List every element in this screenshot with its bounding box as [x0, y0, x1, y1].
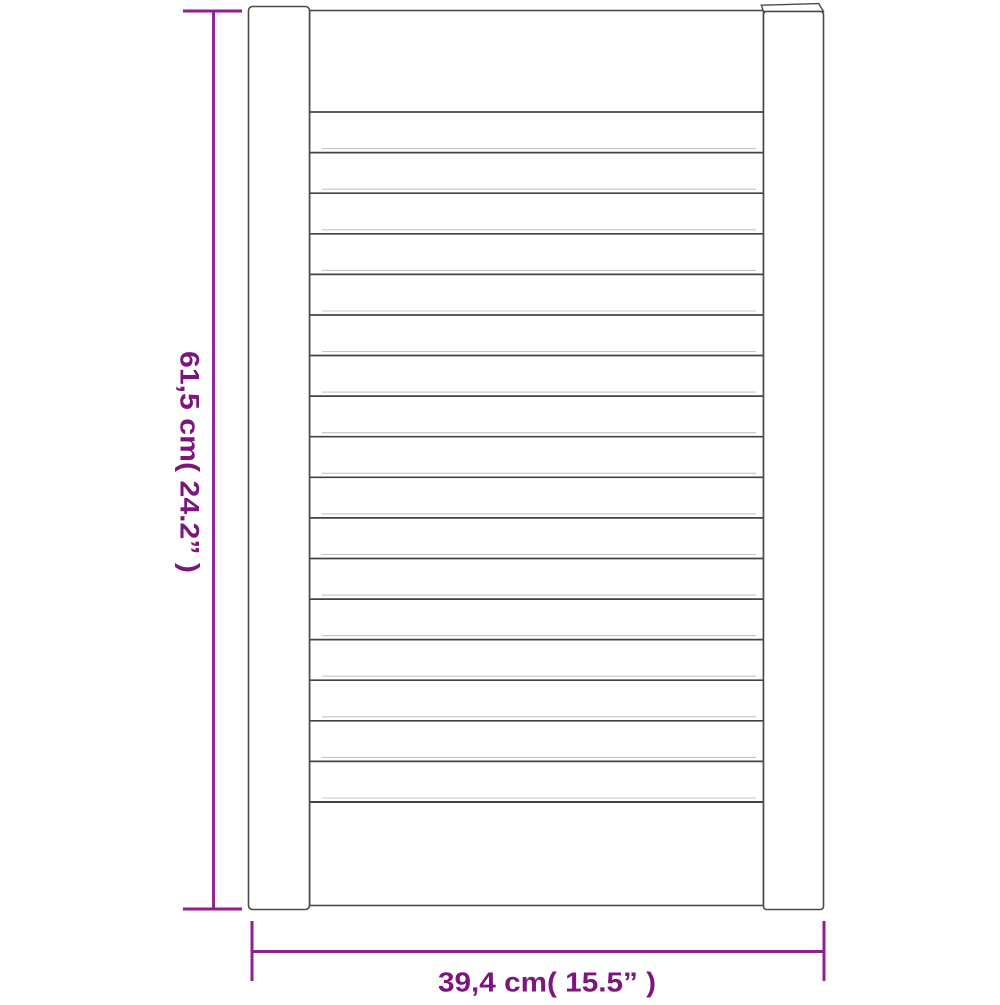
svg-text:61,5 cm( 24.2” ): 61,5 cm( 24.2” ) — [175, 351, 205, 573]
svg-text:39,4 cm( 15.5” ): 39,4 cm( 15.5” ) — [438, 967, 656, 998]
